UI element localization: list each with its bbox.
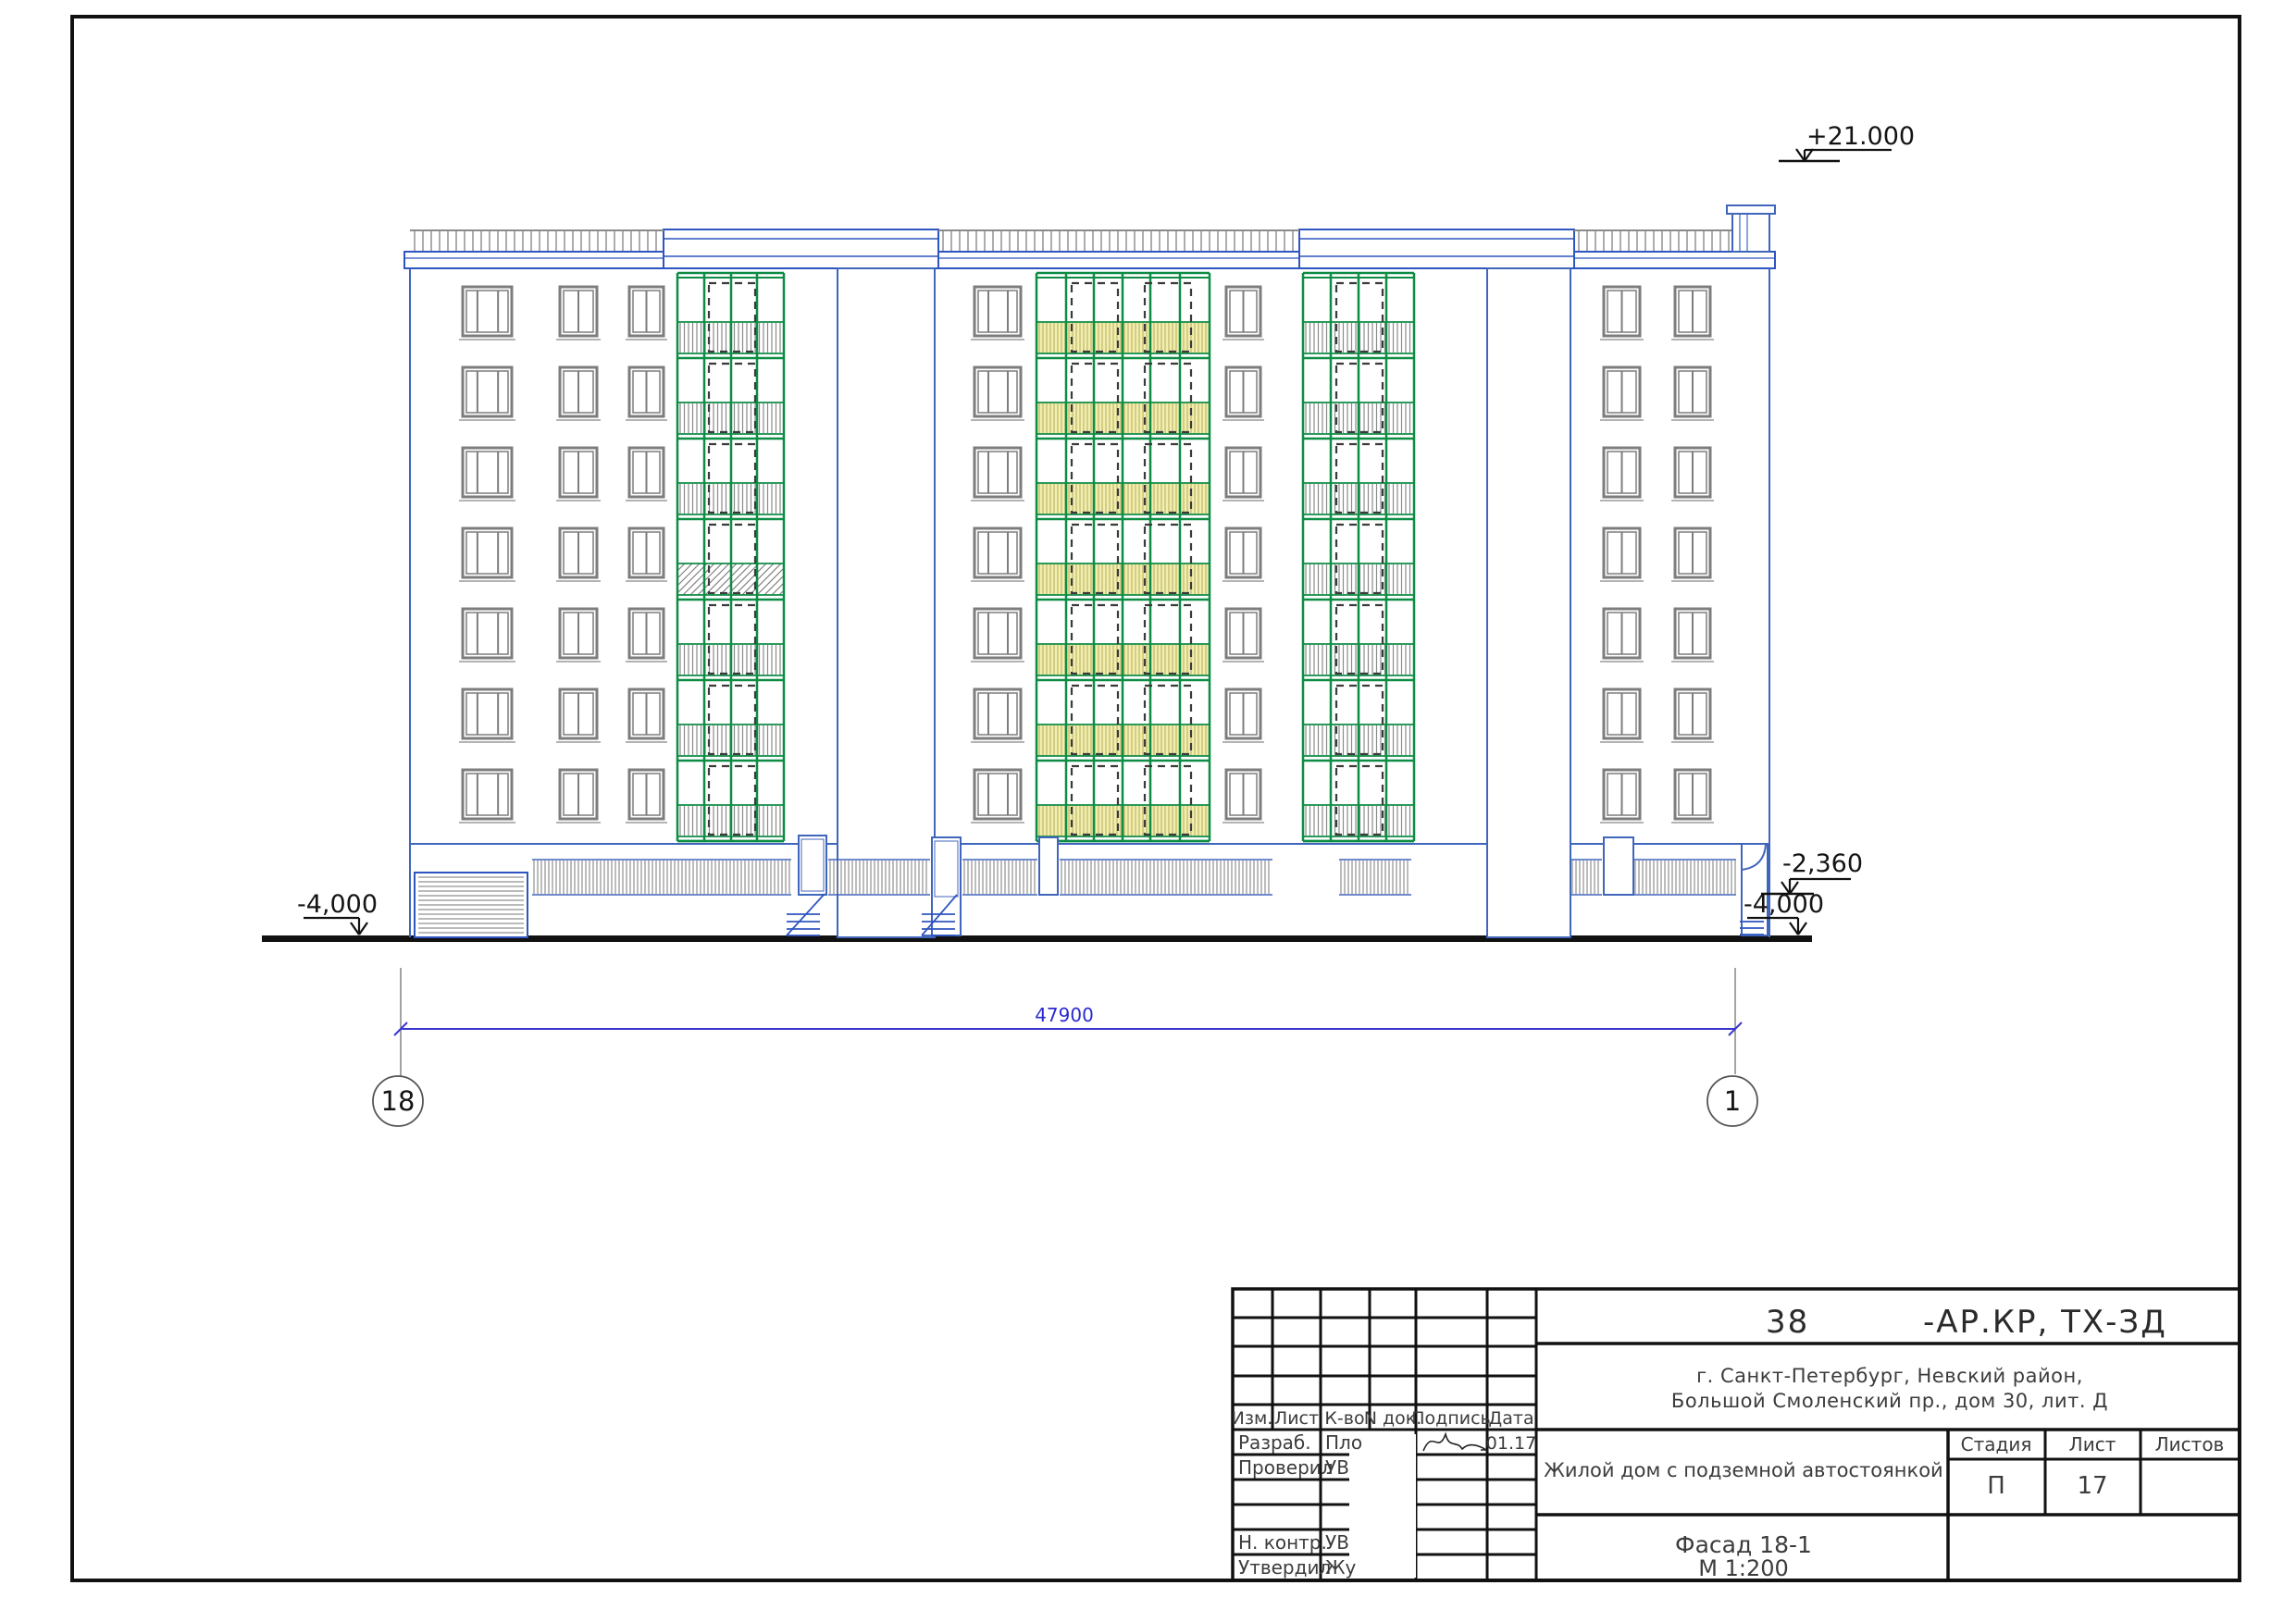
titleblock-col-podpis: Подпись <box>1411 1408 1490 1429</box>
titleblock-sheet-name: Фасад 18-1 <box>1675 1531 1812 1558</box>
dimension-value: 47900 <box>1035 1004 1094 1026</box>
titleblock-address-line1: г. Санкт-Петербург, Невский район, <box>1696 1365 2083 1387</box>
titleblock-stage-header: Стадия <box>1961 1433 2032 1455</box>
elevation-label-minus4000-left: -4,000 <box>297 890 378 919</box>
titleblock-row-razrab-role: Разраб. <box>1238 1431 1311 1454</box>
titleblock-sheet-value: 17 <box>2077 1472 2107 1500</box>
elevation-label-roof: +21.000 <box>1806 122 1915 151</box>
titleblock-project-name: Жилой дом с подземной автостоянкой <box>1544 1459 1942 1481</box>
titleblock-sheets-header: Листов <box>2155 1433 2225 1455</box>
titleblock-col-list: Лист <box>1274 1408 1319 1429</box>
titleblock-code-suffix: -АР.КР, ТХ-ЗД <box>1923 1304 2167 1341</box>
titleblock-row-nkontr-name: УВ <box>1325 1531 1349 1554</box>
titleblock-col-data: Дата <box>1488 1408 1533 1429</box>
titleblock-date: 01.17 <box>1486 1433 1536 1454</box>
titleblock-sheet-header: Лист <box>2069 1433 2116 1455</box>
titleblock-col-izm: Изм. <box>1232 1408 1273 1429</box>
axis-label-18: 18 <box>381 1085 416 1117</box>
titleblock-col-kvo: К-во <box>1324 1408 1364 1429</box>
drawing-sheet: +21.000 -2,360 -4,000 -4,000 47900 18 1 … <box>0 0 2296 1610</box>
axis-label-1: 1 <box>1724 1085 1741 1117</box>
titleblock-row-utverdil-name: Жу <box>1325 1556 1357 1579</box>
titleblock-row-proveril-name: УВ <box>1325 1456 1349 1479</box>
elevation-label-minus4000-right: -4,000 <box>1744 890 1824 919</box>
titleblock-row-nkontr-role: Н. контр. <box>1238 1531 1327 1554</box>
titleblock-address-line2: Большой Смоленский пр., дом 30, лит. Д <box>1671 1390 2108 1412</box>
titleblock-stage-value: П <box>1987 1472 2005 1500</box>
titleblock-code-prefix: 38 <box>1766 1304 1809 1341</box>
titleblock-row-proveril-role: Проверил <box>1238 1456 1334 1479</box>
elevation-label-minus2360: -2,360 <box>1782 849 1863 878</box>
facade-graphics <box>72 17 2240 1580</box>
titleblock-scale: М 1:200 <box>1698 1555 1789 1581</box>
titleblock-row-razrab-name: Пло <box>1325 1431 1362 1454</box>
titleblock-row-utverdil-role: Утвердил <box>1238 1556 1331 1579</box>
facade-drawing: +21.000 -2,360 -4,000 -4,000 47900 18 1 … <box>0 0 2296 1610</box>
